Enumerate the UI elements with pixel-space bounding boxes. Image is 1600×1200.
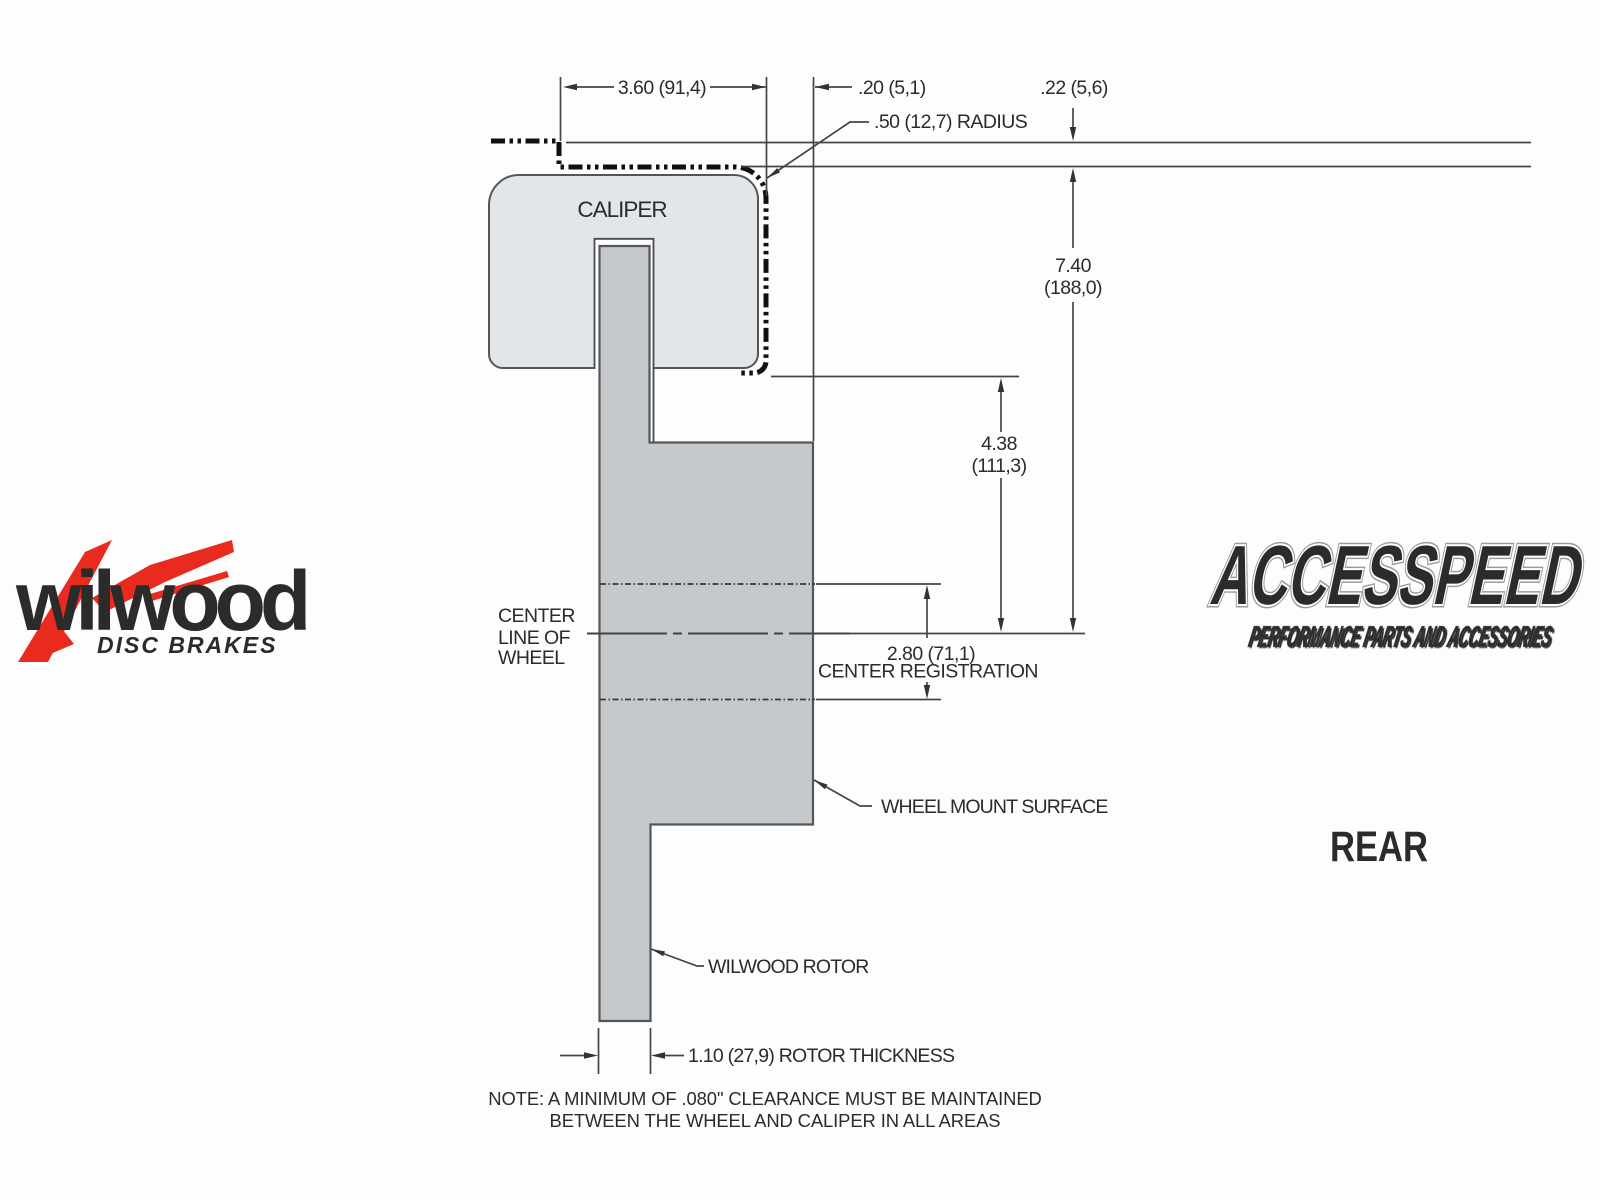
svg-text:PERFORMANCE PARTS AND ACCESSOR: PERFORMANCE PARTS AND ACCESSORIES	[1246, 621, 1555, 654]
svg-text:(188,0): (188,0)	[1044, 277, 1102, 299]
svg-text:1.10 (27,9) ROTOR THICKNESS: 1.10 (27,9) ROTOR THICKNESS	[688, 1045, 955, 1067]
svg-text:NOTE: A MINIMUM OF .080" CLEAR: NOTE: A MINIMUM OF .080" CLEARANCE MUST …	[488, 1088, 1041, 1109]
svg-text:REAR: REAR	[1330, 823, 1428, 871]
svg-text:.50 (12,7) RADIUS: .50 (12,7) RADIUS	[874, 111, 1028, 133]
svg-text:LINE OF: LINE OF	[498, 627, 571, 649]
svg-text:(111,3): (111,3)	[971, 455, 1026, 477]
svg-text:BETWEEN THE WHEEL AND CALIPER: BETWEEN THE WHEEL AND CALIPER IN ALL ARE…	[550, 1110, 1001, 1131]
svg-text:CENTER: CENTER	[498, 605, 575, 627]
svg-text:DISC BRAKES: DISC BRAKES	[97, 632, 277, 658]
svg-text:.20 (5,1): .20 (5,1)	[858, 77, 926, 99]
svg-text:ACCESSPEED: ACCESSPEED	[1205, 528, 1593, 622]
svg-text:3.60 (91,4): 3.60 (91,4)	[618, 77, 706, 99]
svg-text:WHEEL: WHEEL	[498, 647, 565, 669]
svg-text:WILWOOD ROTOR: WILWOOD ROTOR	[708, 956, 869, 978]
svg-text:7.40: 7.40	[1055, 255, 1091, 277]
svg-text:CALIPER: CALIPER	[577, 197, 667, 222]
svg-text:WHEEL MOUNT SURFACE: WHEEL MOUNT SURFACE	[881, 796, 1108, 818]
svg-text:.22 (5,6): .22 (5,6)	[1040, 77, 1108, 99]
svg-text:CENTER REGISTRATION: CENTER REGISTRATION	[818, 661, 1038, 683]
svg-text:4.38: 4.38	[981, 433, 1017, 455]
